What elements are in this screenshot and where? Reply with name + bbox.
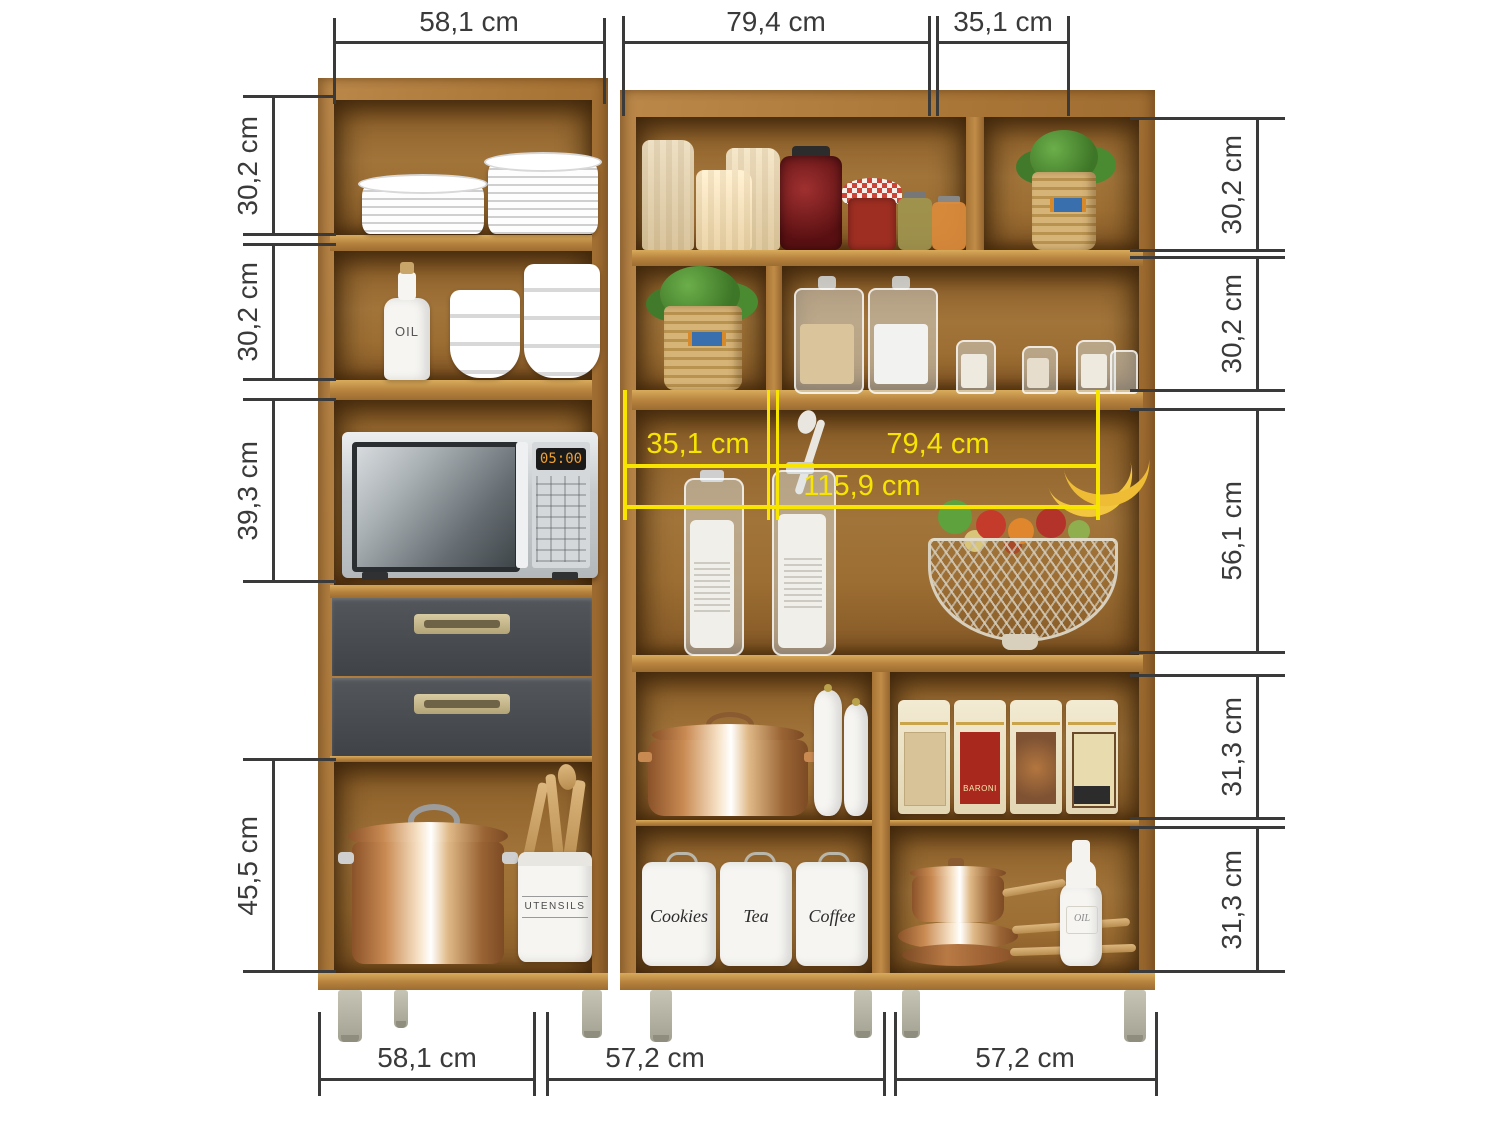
left-dim-label-4-text: 45,5 cm bbox=[232, 816, 264, 916]
left-dim-line-3 bbox=[272, 398, 275, 583]
canister-cookies: Cookies bbox=[642, 862, 716, 966]
right-dim-label-3: 56,1 cm bbox=[1212, 408, 1252, 654]
dim-tick bbox=[1130, 826, 1285, 829]
left-dim-label-3: 39,3 cm bbox=[228, 398, 268, 583]
oil-bottle-small: OIL bbox=[1060, 884, 1102, 966]
left-dim-label-1-text: 30,2 cm bbox=[232, 116, 264, 216]
lower-column-divider bbox=[872, 672, 890, 973]
right-dim-line-4 bbox=[1256, 674, 1259, 820]
grinder-finial bbox=[852, 698, 860, 706]
right-dim-line-1 bbox=[1256, 117, 1259, 252]
dim-tick bbox=[1155, 1012, 1158, 1096]
small-bottle-contents bbox=[961, 354, 987, 388]
right-dim-label-2-text: 30,2 cm bbox=[1216, 274, 1248, 374]
hutch-top-divider bbox=[966, 117, 984, 250]
tin-label bbox=[1072, 732, 1116, 808]
drawer-top[interactable] bbox=[332, 598, 592, 676]
utensil-crock-label: UTENSILS bbox=[522, 896, 588, 918]
inner-dim-tick bbox=[1096, 390, 1100, 520]
right-dim-label-2: 30,2 cm bbox=[1212, 256, 1252, 392]
tin-band bbox=[956, 722, 1004, 725]
stock-pot-handle bbox=[338, 852, 354, 864]
leg bbox=[582, 990, 602, 1038]
microwave-display: 05:00 bbox=[536, 448, 586, 470]
leg bbox=[338, 990, 362, 1042]
right-cabinet-base bbox=[620, 973, 1155, 990]
utensil-crock: UTENSILS bbox=[518, 852, 592, 962]
bowl-stack bbox=[450, 290, 520, 378]
dim-tick bbox=[894, 1012, 897, 1096]
bottom-dim-label-2: 57,2 cm bbox=[555, 1042, 755, 1074]
small-bottle bbox=[956, 340, 996, 394]
microwave-control-panel: 05:00 bbox=[532, 442, 590, 568]
decorative-tin-red: BARONI bbox=[954, 700, 1006, 814]
plate-stack-top bbox=[484, 152, 602, 172]
stock-pot bbox=[352, 842, 504, 964]
tin-band bbox=[1068, 722, 1116, 725]
canister-cookies-label: Cookies bbox=[642, 906, 716, 927]
dim-tick bbox=[1130, 817, 1285, 820]
plate-stack-top bbox=[358, 174, 488, 194]
dim-tick bbox=[1130, 117, 1285, 120]
oil-bottle-label: OIL bbox=[384, 324, 430, 342]
pepper-grinder bbox=[814, 690, 842, 816]
left-dim-label-2-text: 30,2 cm bbox=[232, 262, 264, 362]
left-cabinet-base bbox=[318, 973, 608, 990]
left-dim-label-3-text: 39,3 cm bbox=[232, 441, 264, 541]
hutch-shelf-1 bbox=[632, 250, 1143, 266]
microwave-foot bbox=[362, 572, 388, 580]
decorative-tin bbox=[1066, 700, 1118, 814]
drawer-bottom-handle-slot bbox=[424, 700, 500, 708]
inner-dim-label-35-1: 35,1 cm bbox=[598, 428, 798, 460]
saucepan bbox=[912, 876, 1004, 922]
left-cabinet-shelf-2 bbox=[330, 585, 592, 598]
salt-grinder bbox=[844, 704, 868, 816]
grinder-finial bbox=[824, 684, 832, 692]
oil-bottle-small-neck bbox=[1072, 840, 1090, 864]
canister-tea: Tea bbox=[720, 862, 792, 966]
dim-tick bbox=[546, 1012, 549, 1096]
small-bottle bbox=[1110, 350, 1138, 394]
dim-tick bbox=[1130, 970, 1285, 973]
right-dim-label-5-text: 31,3 cm bbox=[1216, 850, 1248, 950]
bottom-dim-line-1 bbox=[318, 1078, 536, 1081]
casserole-pot bbox=[648, 740, 808, 816]
canister-tea-label: Tea bbox=[720, 906, 792, 927]
left-dim-label-4: 45,5 cm bbox=[228, 758, 268, 973]
berry-jar bbox=[780, 156, 842, 250]
top-dim-line-1 bbox=[333, 41, 606, 44]
frying-pan bbox=[902, 944, 1014, 966]
right-dim-label-4: 31,3 cm bbox=[1212, 674, 1252, 820]
oil-bottle-cork bbox=[400, 262, 414, 274]
leg bbox=[902, 990, 920, 1038]
right-dim-label-1-text: 30,2 cm bbox=[1216, 135, 1248, 235]
dim-tick bbox=[1130, 408, 1285, 411]
decorative-tin bbox=[1010, 700, 1062, 814]
right-dim-label-1: 30,2 cm bbox=[1212, 117, 1252, 252]
inner-dim-line-upper bbox=[623, 464, 1100, 468]
drawer-top-handle[interactable] bbox=[414, 614, 510, 634]
plant-basket bbox=[1032, 172, 1096, 250]
dim-tick bbox=[1130, 674, 1285, 677]
top-dim-label-2: 79,4 cm bbox=[676, 6, 876, 38]
leg bbox=[854, 990, 872, 1038]
top-dim-label-1: 58,1 cm bbox=[369, 6, 569, 38]
left-cabinet-divider-panel bbox=[330, 380, 592, 400]
microwave-door-handle bbox=[516, 442, 528, 568]
storage-jar-label bbox=[784, 558, 822, 608]
paper-bag bbox=[642, 140, 694, 250]
right-dim-label-5: 31,3 cm bbox=[1212, 826, 1252, 973]
bottom-dim-line-3 bbox=[894, 1078, 1158, 1081]
small-bottle-contents bbox=[1081, 354, 1107, 388]
right-dim-label-3-text: 56,1 cm bbox=[1216, 481, 1248, 581]
leg bbox=[394, 990, 408, 1028]
plant-basket-label bbox=[688, 332, 726, 346]
dim-tick bbox=[533, 1012, 536, 1096]
bottom-dim-label-1: 58,1 cm bbox=[327, 1042, 527, 1074]
microwave-buttons bbox=[536, 476, 586, 562]
dim-tick bbox=[883, 1012, 886, 1096]
canister-coffee-label: Coffee bbox=[796, 906, 868, 927]
dim-tick bbox=[318, 1012, 321, 1096]
dim-tick bbox=[1130, 389, 1285, 392]
inner-dim-label-115-9: 115,9 cm bbox=[762, 470, 962, 502]
glass-canister-sugar bbox=[868, 288, 938, 394]
glass-canister-contents bbox=[800, 324, 854, 384]
plant-basket-label bbox=[1050, 198, 1086, 212]
bottom-dim-line-2 bbox=[546, 1078, 886, 1081]
microwave-door bbox=[352, 442, 520, 572]
pickle-jar bbox=[898, 198, 932, 250]
microwave-foot bbox=[552, 572, 578, 580]
oil-bottle-small-shoulder bbox=[1066, 860, 1096, 888]
left-dim-line-4 bbox=[272, 758, 275, 973]
hutch-shelf-2 bbox=[632, 655, 1143, 672]
oil-bottle-small-label: OIL bbox=[1066, 906, 1098, 934]
left-dim-label-2: 30,2 cm bbox=[228, 243, 268, 381]
tin-red-text: BARONI bbox=[960, 784, 1000, 793]
inner-dim-line-total bbox=[623, 505, 1100, 509]
right-dim-line-3 bbox=[1256, 408, 1259, 654]
plate-stack bbox=[488, 162, 598, 234]
glass-canister-contents bbox=[874, 324, 928, 384]
utensil-crock-rim bbox=[518, 852, 592, 866]
tin-label-band bbox=[1074, 786, 1110, 804]
top-dim-line-3 bbox=[936, 41, 1070, 44]
left-dim-line-2 bbox=[272, 243, 275, 381]
inner-dim-label-79-4: 79,4 cm bbox=[838, 428, 1038, 460]
oil-bottle: OIL bbox=[384, 298, 430, 380]
right-dim-label-4-text: 31,3 cm bbox=[1216, 697, 1248, 797]
left-dim-line-1 bbox=[272, 95, 275, 236]
drawer-bottom-handle[interactable] bbox=[414, 694, 510, 714]
jam-jar bbox=[848, 198, 896, 250]
decorative-tin bbox=[898, 700, 950, 814]
dim-tick bbox=[1130, 249, 1285, 252]
drawer-top-handle-slot bbox=[424, 620, 500, 628]
dim-tick bbox=[622, 16, 625, 116]
dim-tick bbox=[1130, 651, 1285, 654]
small-bottle bbox=[1022, 346, 1058, 394]
bottom-dim-label-3: 57,2 cm bbox=[925, 1042, 1125, 1074]
dimension-diagram: OIL 05:00 UTENSILS bbox=[0, 0, 1500, 1125]
small-bottle-contents bbox=[1027, 358, 1049, 388]
tin-band bbox=[1012, 722, 1060, 725]
leg bbox=[1124, 990, 1146, 1042]
tin-label-red: BARONI bbox=[960, 732, 1000, 804]
dim-tick bbox=[333, 18, 336, 104]
tin-label bbox=[1016, 732, 1056, 804]
dim-tick bbox=[603, 18, 606, 104]
casserole-handle bbox=[638, 752, 652, 762]
top-dim-label-3: 35,1 cm bbox=[903, 6, 1103, 38]
left-dim-label-1: 30,2 cm bbox=[228, 95, 268, 236]
canister-coffee: Coffee bbox=[796, 862, 868, 966]
storage-jar-label bbox=[694, 562, 730, 612]
top-dim-line-2 bbox=[622, 41, 931, 44]
left-cabinet-drawer-lip bbox=[330, 756, 592, 762]
tin-label bbox=[904, 732, 946, 806]
tin-band bbox=[900, 722, 948, 725]
left-cabinet-shelf-1 bbox=[330, 235, 592, 251]
fruit-basket-foot bbox=[1002, 634, 1038, 650]
hutch-row2-divider bbox=[766, 266, 782, 390]
preserve-jar bbox=[932, 202, 966, 250]
glass-canister-grains bbox=[794, 288, 864, 394]
paper-bag bbox=[696, 170, 752, 250]
oil-bottle-neck bbox=[398, 272, 416, 300]
stock-pot-handle bbox=[502, 852, 518, 864]
dim-tick bbox=[1130, 256, 1285, 259]
right-dim-line-2 bbox=[1256, 256, 1259, 392]
plant-basket bbox=[664, 306, 742, 390]
microwave: 05:00 bbox=[342, 432, 598, 578]
leg bbox=[650, 990, 672, 1042]
bowl-stack bbox=[524, 264, 600, 378]
drawer-bottom[interactable] bbox=[332, 678, 592, 756]
right-dim-line-5 bbox=[1256, 826, 1259, 973]
